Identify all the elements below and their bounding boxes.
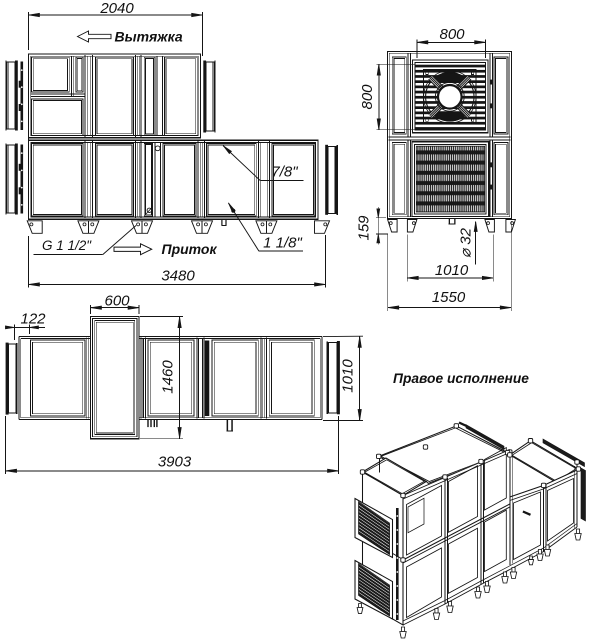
svg-text:Вытяжка: Вытяжка [115,29,183,45]
svg-text:1010: 1010 [340,359,357,393]
svg-text:Правое исполнение: Правое исполнение [393,371,529,386]
svg-text:122: 122 [20,311,46,328]
svg-text:1460: 1460 [160,360,177,394]
svg-text:G 1 1/2": G 1 1/2" [42,238,92,253]
svg-text:1010: 1010 [435,262,469,279]
svg-text:Приток: Приток [162,241,218,257]
svg-text:7/8": 7/8" [271,164,298,181]
svg-text:3903: 3903 [158,453,192,470]
svg-text:1 1/8": 1 1/8" [263,235,302,252]
svg-text:3480: 3480 [161,268,195,285]
svg-text:⌀ 32: ⌀ 32 [458,227,475,258]
svg-text:800: 800 [359,84,376,110]
svg-text:600: 600 [104,292,130,309]
svg-text:1550: 1550 [432,289,466,306]
svg-text:159: 159 [356,215,373,241]
svg-text:800: 800 [439,26,465,43]
svg-text:2040: 2040 [99,0,134,17]
